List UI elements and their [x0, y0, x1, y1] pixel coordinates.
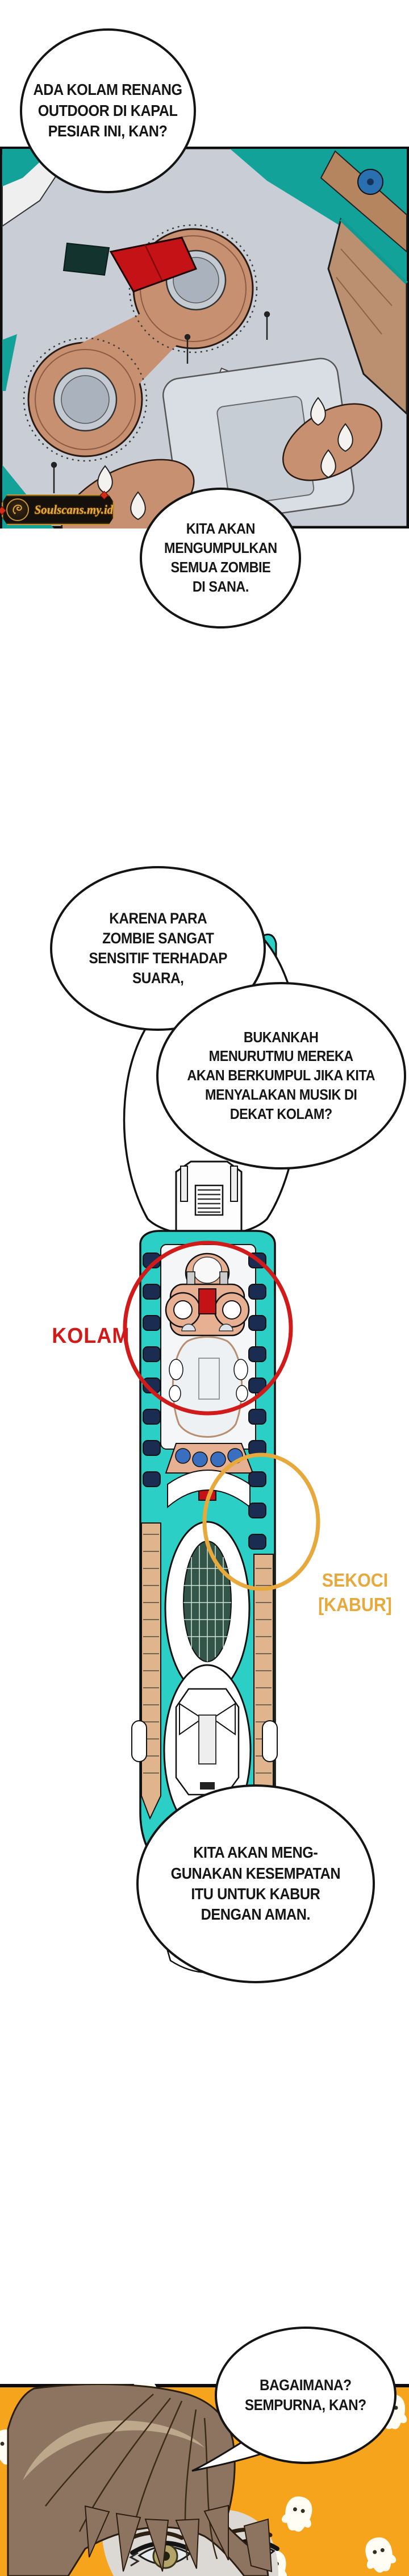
ship-pool-zone [161, 1245, 256, 1507]
comic-page: Soulscans.my.id [0, 0, 409, 2576]
pool-deck-panel [0, 147, 409, 528]
speech-text: KITA AKAN MENG- GUNAKAN KESEMPATAN ITU U… [171, 1842, 341, 1925]
watermark-emblem-icon [6, 498, 29, 521]
speech-bubble: BUKANKAH MENURUTMU MEREKA AKAN BERKUMPUL… [156, 982, 406, 1170]
red-stage [199, 1289, 216, 1314]
speech-bubble: KITA AKAN MENG- GUNAKAN KESEMPATAN ITU U… [136, 1784, 375, 1983]
ship-pool [173, 1337, 241, 1437]
kolam-label: KOLAM [52, 1324, 122, 1349]
speech-text: BUKANKAH MENURUTMU MEREKA AKAN BERKUMPUL… [187, 1028, 375, 1124]
speech-text: BAGAIMANA? SEMPURNA, KAN? [245, 2375, 366, 2415]
speech-bubble: KITA AKAN MENGUMPULKAN SEMUA ZOMBIE DI S… [140, 488, 301, 629]
speech-text: KARENA PARA ZOMBIE SANGAT SENSITIF TERHA… [89, 909, 227, 988]
speech-bubble: ADA KOLAM RENANG OUTDOOR DI KAPAL PESIAR… [20, 28, 196, 193]
scanlation-watermark: Soulscans.my.id [2, 494, 114, 525]
speech-bubble: BAGAIMANA? SEMPURNA, KAN? [215, 2327, 397, 2464]
speech-text: ADA KOLAM RENANG OUTDOOR DI KAPAL PESIAR… [34, 80, 182, 142]
speech-text: KITA AKAN MENGUMPULKAN SEMUA ZOMBIE DI S… [164, 519, 277, 596]
watermark-text: Soulscans.my.id [35, 502, 114, 517]
sekoci-label: SEKOCI [KABUR] [311, 1568, 399, 1617]
